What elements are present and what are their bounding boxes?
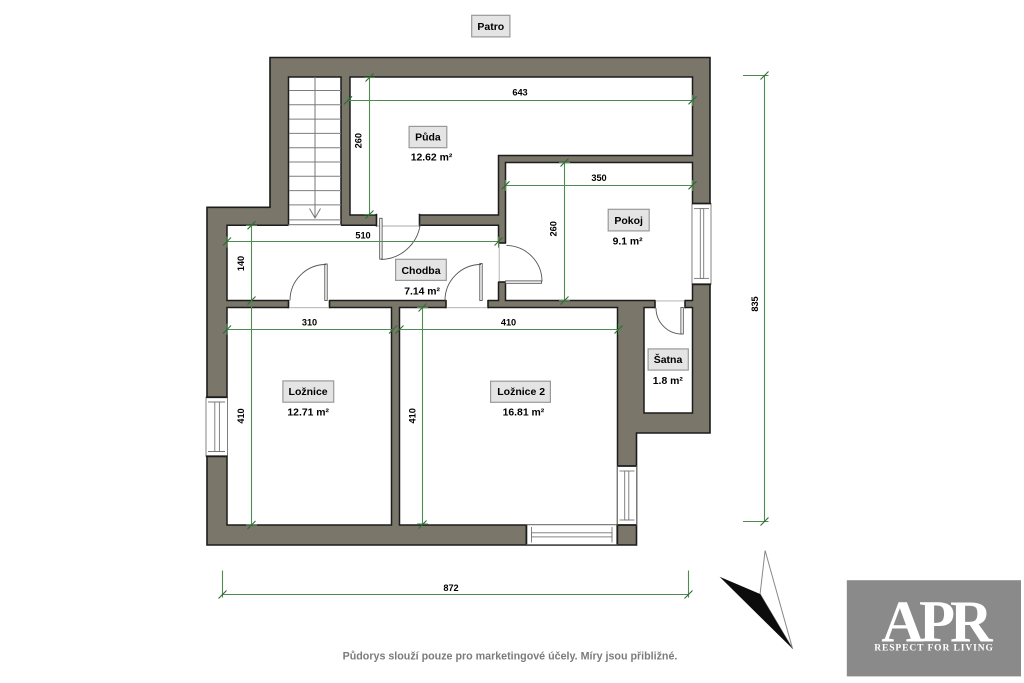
svg-text:Patro: Patro bbox=[477, 21, 504, 33]
svg-text:Pokoj: Pokoj bbox=[614, 215, 643, 227]
svg-text:Šatna: Šatna bbox=[654, 353, 683, 366]
svg-text:260: 260 bbox=[549, 221, 559, 236]
svg-text:Chodba: Chodba bbox=[401, 265, 440, 277]
svg-text:310: 310 bbox=[302, 318, 317, 328]
svg-text:410: 410 bbox=[501, 318, 516, 328]
svg-text:RESPECT FOR LIVING: RESPECT FOR LIVING bbox=[874, 643, 994, 653]
svg-text:872: 872 bbox=[443, 583, 458, 593]
svg-text:12.62 m²: 12.62 m² bbox=[411, 153, 453, 164]
svg-text:140: 140 bbox=[236, 256, 246, 271]
svg-text:Ložnice 2: Ložnice 2 bbox=[497, 386, 545, 398]
svg-text:Půdorys slouží pouze pro marke: Půdorys slouží pouze pro marketingové úč… bbox=[343, 651, 678, 663]
svg-text:350: 350 bbox=[591, 173, 606, 183]
svg-text:Ložnice: Ložnice bbox=[289, 386, 328, 398]
svg-text:643: 643 bbox=[512, 88, 527, 98]
svg-text:12.71 m²: 12.71 m² bbox=[287, 408, 329, 419]
svg-text:260: 260 bbox=[354, 133, 364, 148]
svg-text:410: 410 bbox=[408, 408, 418, 423]
svg-text:1.8 m²: 1.8 m² bbox=[653, 376, 684, 387]
svg-text:410: 410 bbox=[236, 408, 246, 423]
svg-text:835: 835 bbox=[750, 296, 760, 311]
svg-text:Půda: Půda bbox=[415, 132, 441, 144]
svg-text:7.14 m²: 7.14 m² bbox=[404, 287, 440, 298]
svg-text:16.81 m²: 16.81 m² bbox=[503, 408, 545, 419]
svg-text:9.1 m²: 9.1 m² bbox=[613, 236, 644, 247]
svg-text:510: 510 bbox=[355, 230, 370, 240]
